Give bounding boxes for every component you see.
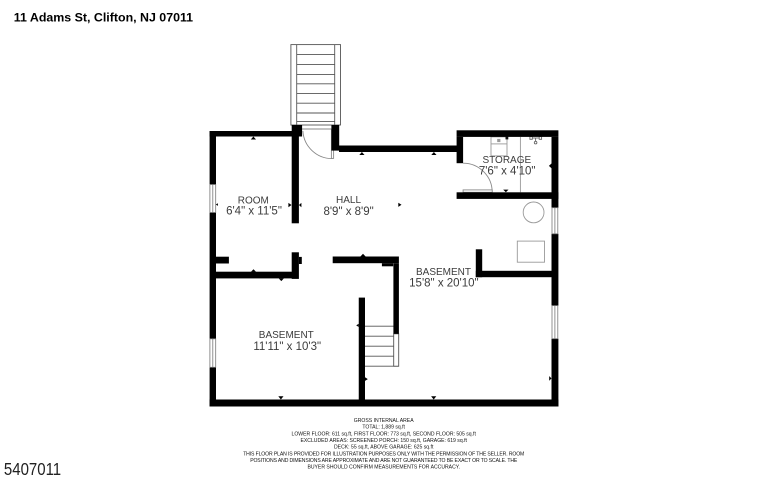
svg-text:LOWER FLOOR: 611 sq.ft, FIRST: LOWER FLOOR: 611 sq.ft, FIRST FLOOR: 773… xyxy=(292,431,477,437)
svg-text:6'4" x 11'5": 6'4" x 11'5" xyxy=(226,206,282,218)
svg-text:15'8" x 20'10": 15'8" x 20'10" xyxy=(409,278,478,290)
svg-text:5407011: 5407011 xyxy=(4,460,61,479)
svg-text:THIS FLOOR PLAN IS PROVIDED FO: THIS FLOOR PLAN IS PROVIDED FOR ILLUSTRA… xyxy=(243,451,524,457)
svg-text:POSITIONS AND DIMENSIONS ARE A: POSITIONS AND DIMENSIONS ARE APPROXIMATE… xyxy=(250,458,518,464)
svg-text:BASEMENT: BASEMENT xyxy=(416,267,471,278)
svg-text:HALL: HALL xyxy=(336,195,361,206)
svg-text:TOTAL: 1,889 sq.ft: TOTAL: 1,889 sq.ft xyxy=(362,425,405,431)
svg-text:11 Adams St, Clifton, NJ 07011: 11 Adams St, Clifton, NJ 07011 xyxy=(14,10,193,24)
svg-text:GROSS INTERNAL AREA: GROSS INTERNAL AREA xyxy=(354,418,414,424)
svg-text:8'9" x 8'9": 8'9" x 8'9" xyxy=(323,206,373,218)
svg-text:STORAGE: STORAGE xyxy=(482,155,531,166)
svg-text:EXCLUDED AREAS: SCREENED PORCH: EXCLUDED AREAS: SCREENED PORCH: 150 sq.f… xyxy=(300,438,467,444)
svg-text:11'11" x 10'3": 11'11" x 10'3" xyxy=(253,341,321,353)
svg-text:BUYER SHOULD CONFIRM MEASUREME: BUYER SHOULD CONFIRM MEASUREMENTS FOR AC… xyxy=(307,465,459,471)
svg-text:7'6" x 4'10": 7'6" x 4'10" xyxy=(479,166,536,178)
svg-text:BASEMENT: BASEMENT xyxy=(259,330,314,341)
svg-text:DECK: 55 sq.ft, ABOVE GARAGE:: DECK: 55 sq.ft, ABOVE GARAGE: 625 sq.ft xyxy=(334,445,434,451)
